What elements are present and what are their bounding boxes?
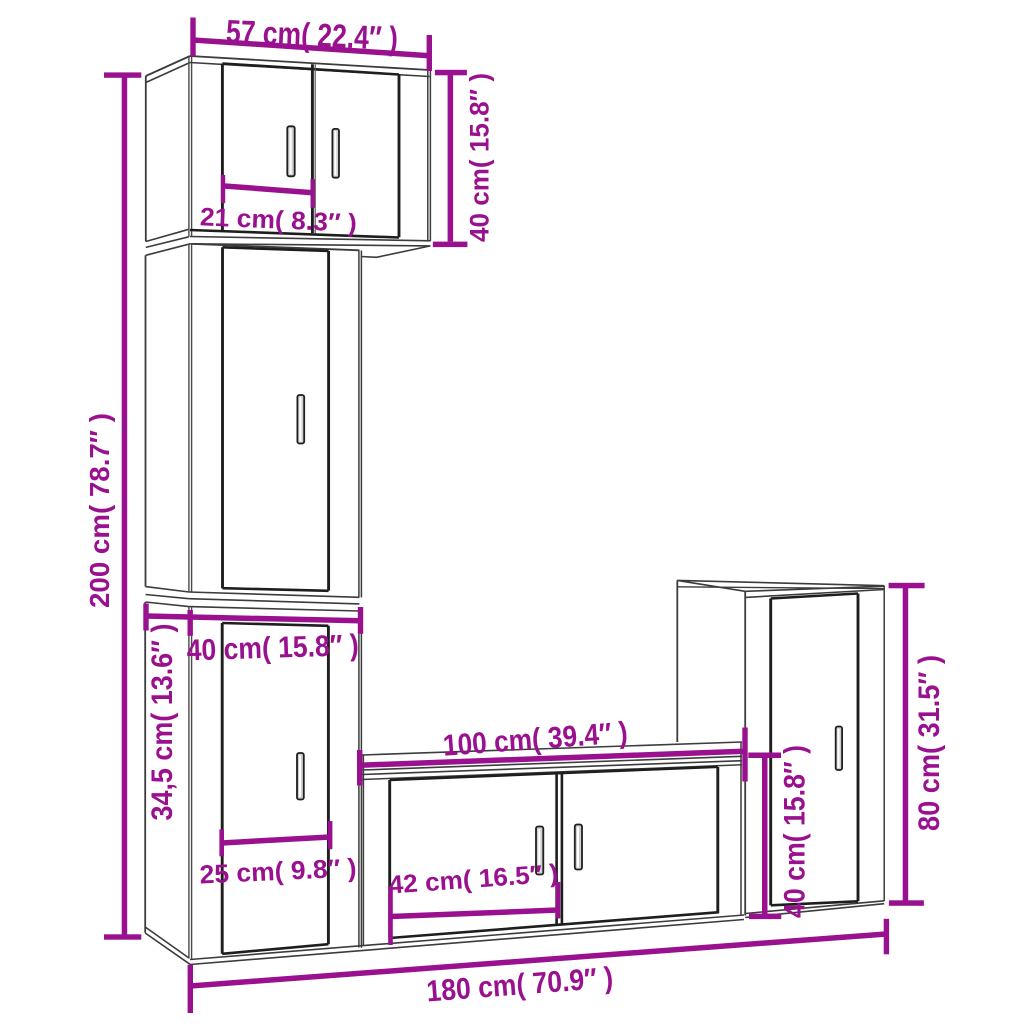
- svg-text:40 cm( 15.8″ ): 40 cm( 15.8″ ): [465, 73, 495, 242]
- svg-text:40 cm( 15.8″ ): 40 cm( 15.8″ ): [779, 745, 812, 918]
- svg-text:80 cm( 31.5″ ): 80 cm( 31.5″ ): [913, 655, 946, 831]
- svg-text:40 cm( 15.8″ ): 40 cm( 15.8″ ): [186, 629, 359, 667]
- svg-text:57 cm( 22.4″ ): 57 cm( 22.4″ ): [225, 13, 398, 57]
- svg-text:200 cm( 78.7″ ): 200 cm( 78.7″ ): [84, 413, 115, 608]
- svg-text:34,5 cm( 13.6″ ): 34,5 cm( 13.6″ ): [146, 624, 179, 821]
